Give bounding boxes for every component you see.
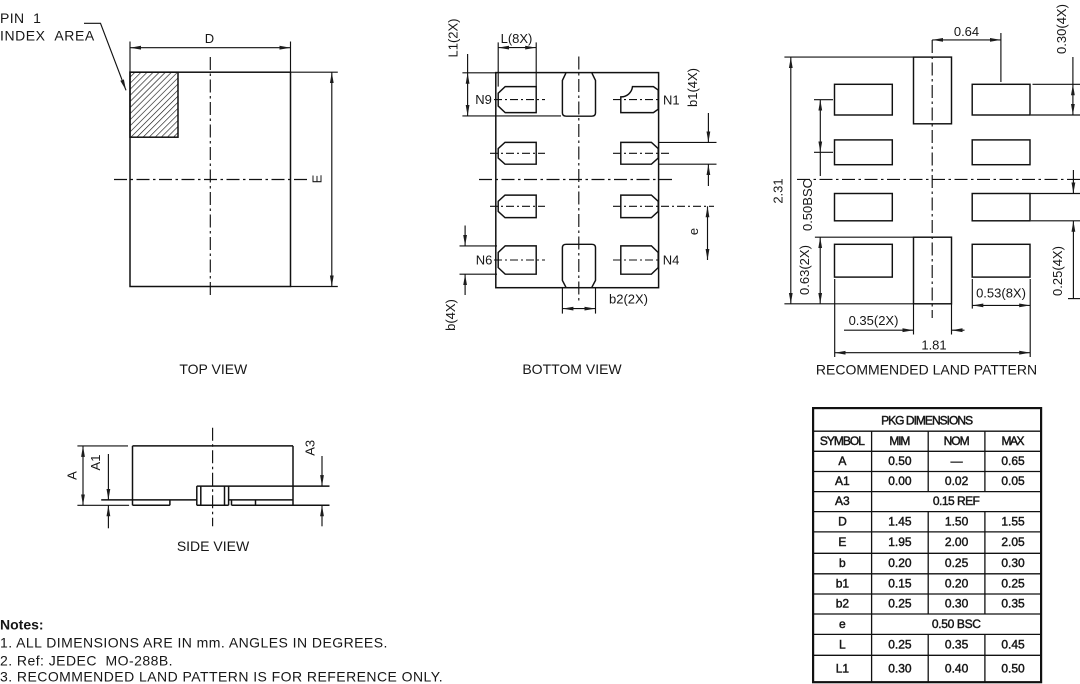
svg-text:A3: A3 <box>835 494 850 508</box>
svg-text:N9: N9 <box>475 92 492 107</box>
svg-text:e: e <box>686 228 701 235</box>
svg-text:0.40: 0.40 <box>945 661 969 675</box>
svg-text:2. Ref: JEDEC MO-288B.: 2. Ref: JEDEC MO-288B. <box>0 653 173 669</box>
svg-text:0.30: 0.30 <box>945 597 969 611</box>
svg-text:2.31: 2.31 <box>771 178 786 203</box>
svg-text:N6: N6 <box>476 252 493 267</box>
svg-text:0.30: 0.30 <box>888 661 912 675</box>
svg-text:E: E <box>310 174 325 183</box>
svg-text:0.30: 0.30 <box>1001 556 1025 570</box>
svg-text:b(4X): b(4X) <box>443 299 458 331</box>
svg-text:3. RECOMMENDED LAND PATTERN IS: 3. RECOMMENDED LAND PATTERN IS FOR REFER… <box>0 669 443 684</box>
svg-text:0.15: 0.15 <box>888 577 912 591</box>
svg-text:2.00: 2.00 <box>945 535 969 549</box>
svg-text:SIDE VIEW: SIDE VIEW <box>177 538 250 554</box>
svg-text:0.30(4X): 0.30(4X) <box>1054 4 1069 54</box>
svg-text:A1: A1 <box>88 455 103 471</box>
svg-text:INDEX AREA: INDEX AREA <box>0 27 95 43</box>
svg-text:A: A <box>838 454 846 468</box>
svg-text:N1: N1 <box>663 92 680 107</box>
svg-text:0.50: 0.50 <box>1001 661 1025 675</box>
svg-text:0.15 REF: 0.15 REF <box>933 494 980 508</box>
svg-text:0.20: 0.20 <box>945 577 969 591</box>
svg-text:0.65: 0.65 <box>1001 454 1025 468</box>
svg-text:1. ALL DIMENSIONS ARE IN mm. A: 1. ALL DIMENSIONS ARE IN mm. ANGLES IN D… <box>0 634 388 650</box>
svg-text:0.25: 0.25 <box>888 638 912 652</box>
svg-text:A: A <box>65 471 80 480</box>
svg-text:0.25: 0.25 <box>1001 577 1025 591</box>
svg-text:0.00: 0.00 <box>888 474 912 488</box>
svg-text:PKG DIMENSIONS: PKG DIMENSIONS <box>881 414 973 428</box>
svg-text:—: — <box>951 454 963 468</box>
svg-text:D: D <box>838 514 847 528</box>
svg-text:0.45: 0.45 <box>1001 638 1025 652</box>
svg-text:PIN 1: PIN 1 <box>0 10 41 26</box>
svg-text:0.63(2X): 0.63(2X) <box>797 245 812 295</box>
svg-text:0.20: 0.20 <box>888 556 912 570</box>
svg-text:0.35: 0.35 <box>945 638 969 652</box>
svg-text:1.50: 1.50 <box>945 514 969 528</box>
svg-text:SYMBOL: SYMBOL <box>820 434 865 448</box>
svg-text:L1: L1 <box>836 661 850 675</box>
svg-text:1.45: 1.45 <box>888 514 912 528</box>
svg-text:0.64: 0.64 <box>954 24 979 39</box>
svg-text:MAX: MAX <box>1002 434 1025 448</box>
svg-text:N4: N4 <box>663 253 680 268</box>
svg-text:A1: A1 <box>835 474 850 488</box>
svg-text:TOP VIEW: TOP VIEW <box>179 361 248 377</box>
svg-text:1.55: 1.55 <box>1001 514 1025 528</box>
svg-text:D: D <box>205 31 214 46</box>
svg-text:E: E <box>838 535 846 549</box>
svg-text:1.95: 1.95 <box>888 535 912 549</box>
svg-text:b: b <box>839 556 846 570</box>
svg-text:L(8X): L(8X) <box>501 31 533 46</box>
svg-text:0.35(2X): 0.35(2X) <box>849 313 899 328</box>
svg-text:RECOMMENDED LAND PATTERN: RECOMMENDED LAND PATTERN <box>816 362 1037 378</box>
svg-text:L1(2X): L1(2X) <box>446 18 461 57</box>
svg-text:0.25(4X): 0.25(4X) <box>1050 246 1065 296</box>
svg-text:b1: b1 <box>836 577 850 591</box>
svg-text:BOTTOM VIEW: BOTTOM VIEW <box>522 361 622 377</box>
svg-text:Notes:: Notes: <box>0 617 44 633</box>
svg-text:0.02: 0.02 <box>945 474 969 488</box>
svg-text:NOM: NOM <box>944 434 970 448</box>
svg-text:0.05: 0.05 <box>1001 474 1025 488</box>
svg-text:e: e <box>839 617 846 631</box>
svg-text:0.53(8X): 0.53(8X) <box>976 286 1026 301</box>
svg-text:b2: b2 <box>836 597 850 611</box>
svg-text:0.25: 0.25 <box>888 597 912 611</box>
svg-text:1.81: 1.81 <box>921 338 946 353</box>
svg-text:L: L <box>839 638 846 652</box>
svg-text:0.35: 0.35 <box>1001 597 1025 611</box>
svg-text:2.05: 2.05 <box>1001 535 1025 549</box>
svg-text:0.25: 0.25 <box>945 556 969 570</box>
svg-text:0.50 BSC: 0.50 BSC <box>932 617 981 631</box>
svg-text:b1(4X): b1(4X) <box>685 68 700 107</box>
svg-text:0.50BSC: 0.50BSC <box>800 179 815 231</box>
svg-text:MIM: MIM <box>889 434 910 448</box>
svg-text:b2(2X): b2(2X) <box>609 291 648 306</box>
svg-text:A3: A3 <box>303 440 318 456</box>
svg-text:0.50: 0.50 <box>888 454 912 468</box>
